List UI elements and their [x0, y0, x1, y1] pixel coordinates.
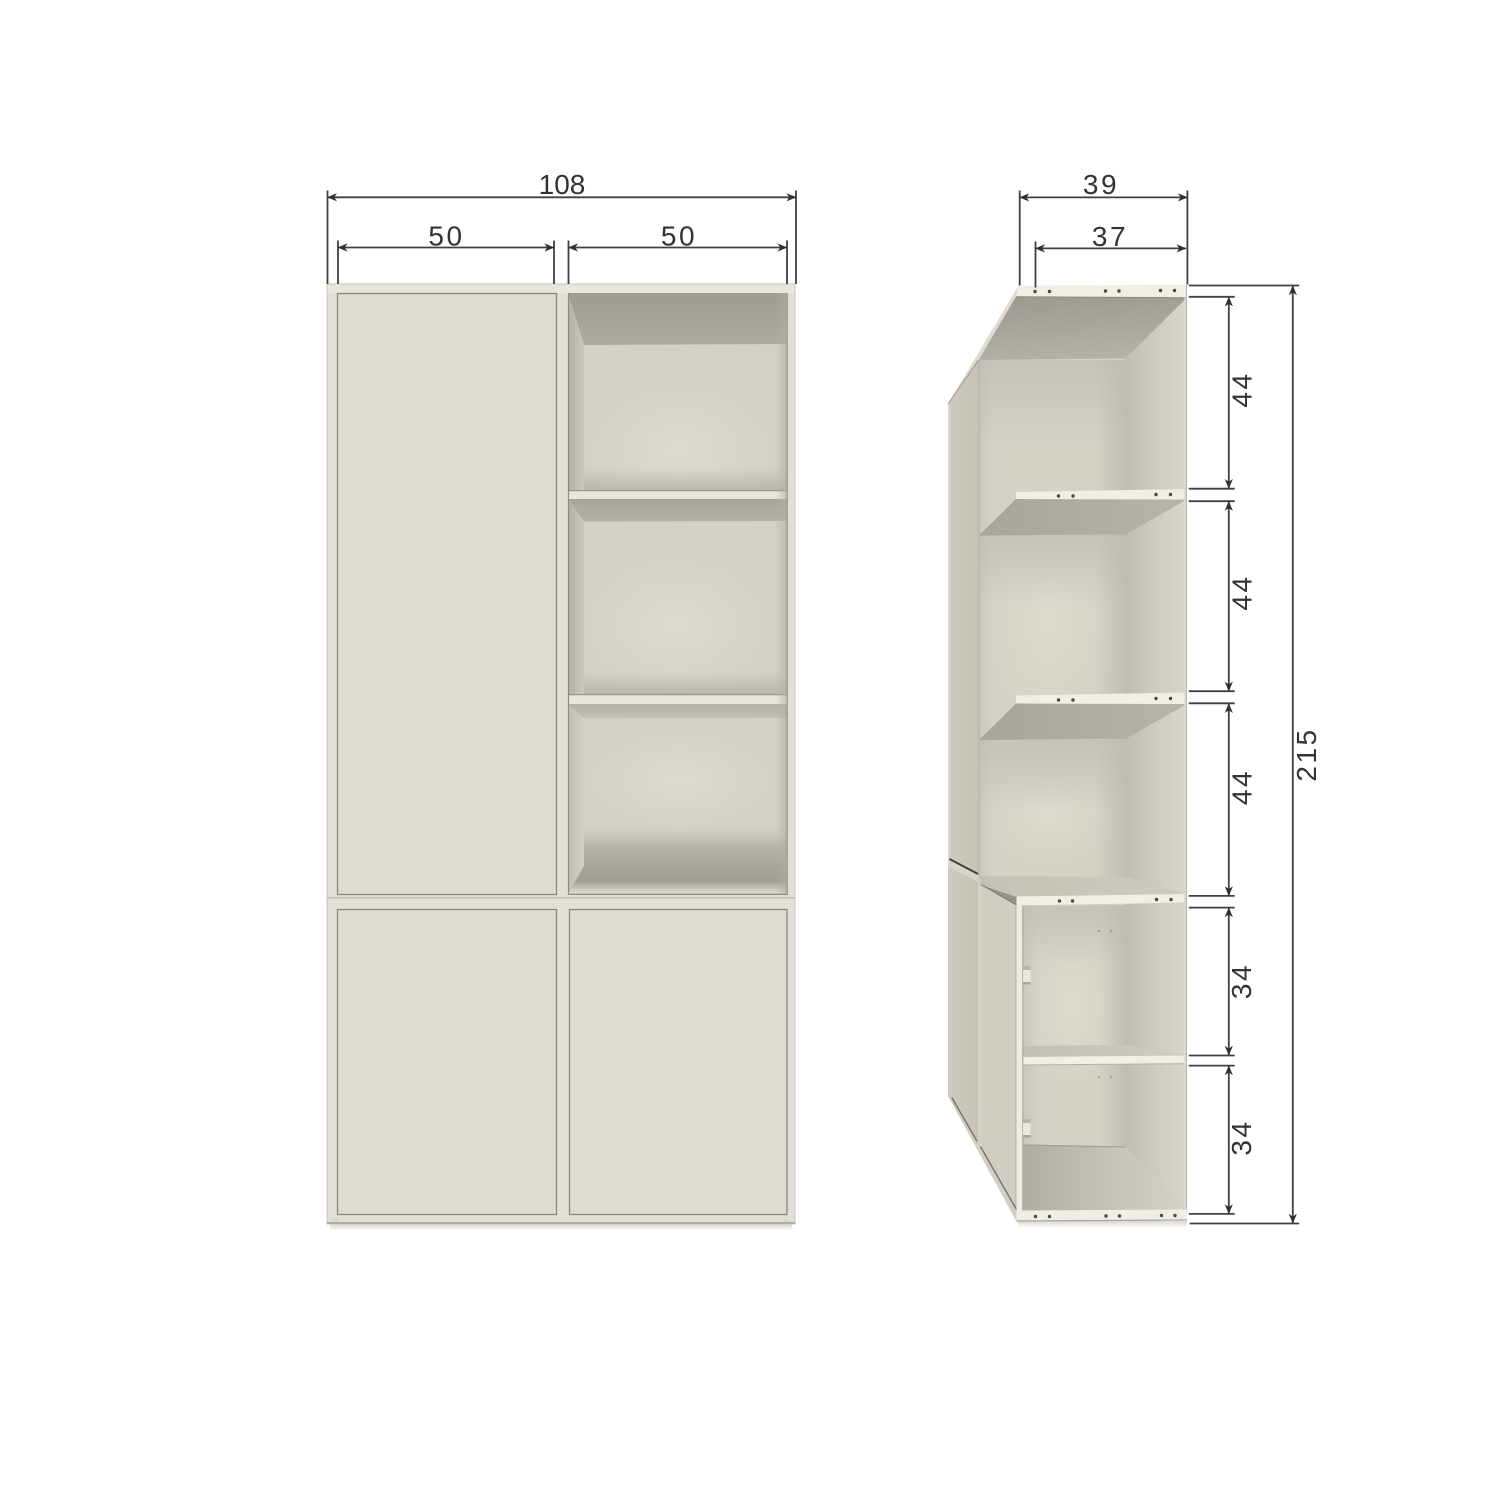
svg-text:108: 108	[539, 169, 586, 200]
svg-text:50: 50	[428, 221, 464, 252]
svg-text:215: 215	[1291, 727, 1322, 781]
svg-text:44: 44	[1227, 769, 1258, 805]
svg-text:37: 37	[1092, 221, 1128, 252]
svg-text:39: 39	[1083, 169, 1119, 200]
svg-text:50: 50	[661, 221, 697, 252]
svg-text:34: 34	[1226, 1119, 1257, 1155]
svg-text:34: 34	[1226, 963, 1257, 999]
svg-text:44: 44	[1227, 574, 1258, 610]
svg-text:44: 44	[1227, 371, 1258, 407]
